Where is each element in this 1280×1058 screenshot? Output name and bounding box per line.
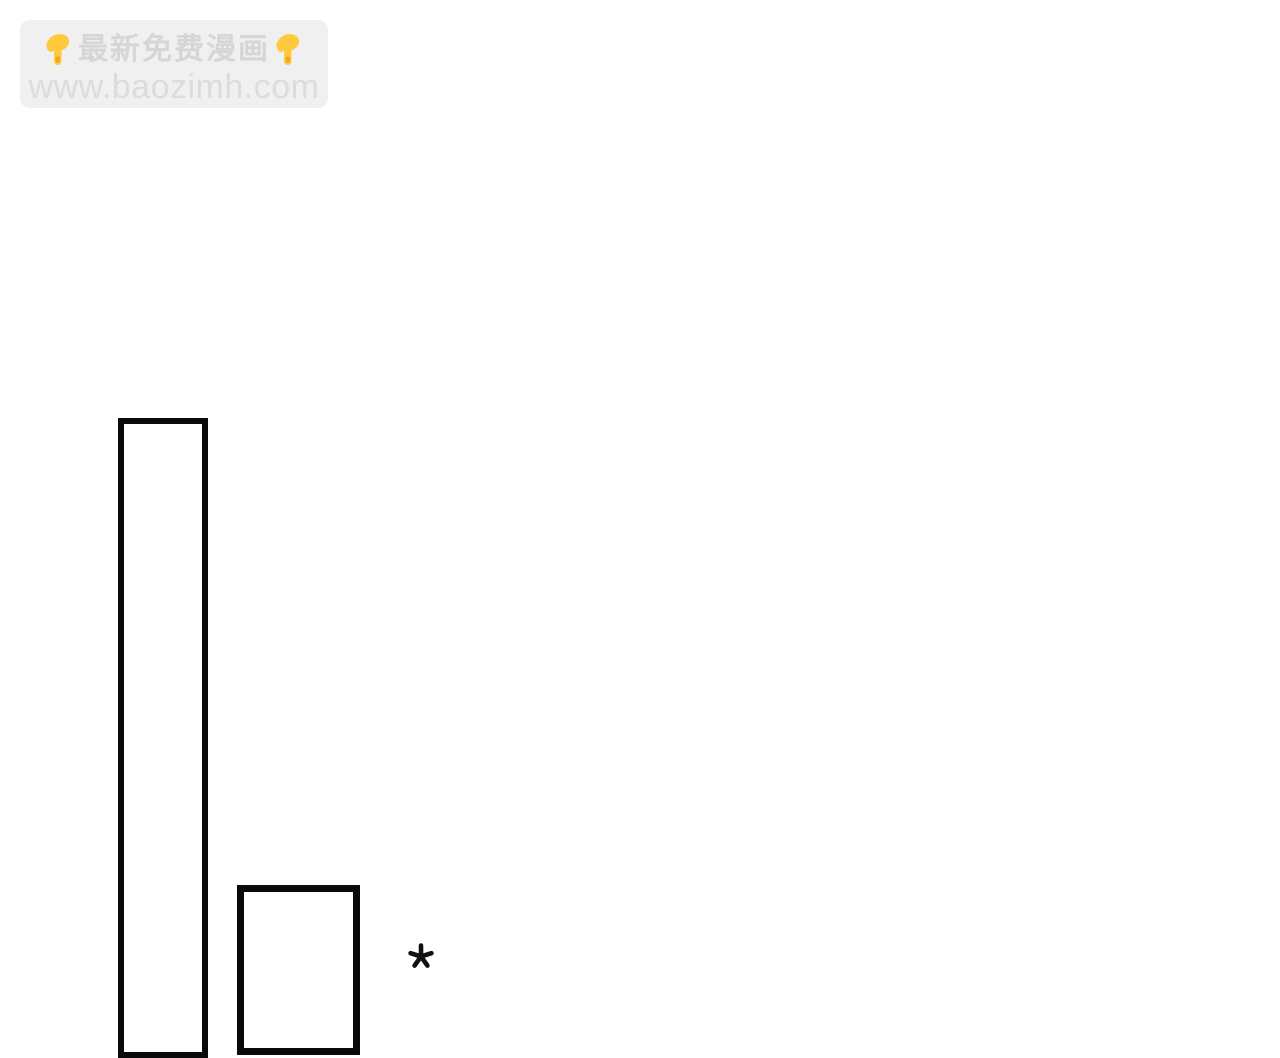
pointing-down-emoji	[44, 31, 74, 69]
comic-panel-tall	[118, 418, 208, 1058]
pointing-down-emoji	[274, 31, 304, 69]
watermark-title: 最新免费漫画	[78, 35, 270, 65]
comic-panel-short	[237, 885, 360, 1055]
watermark-title-row: 最新免费漫画	[44, 31, 304, 69]
watermark-badge: 最新免费漫画 www.baozimh.com	[20, 20, 328, 108]
watermark-url: www.baozimh.com	[29, 70, 320, 104]
asterisk-mark	[408, 943, 434, 971]
